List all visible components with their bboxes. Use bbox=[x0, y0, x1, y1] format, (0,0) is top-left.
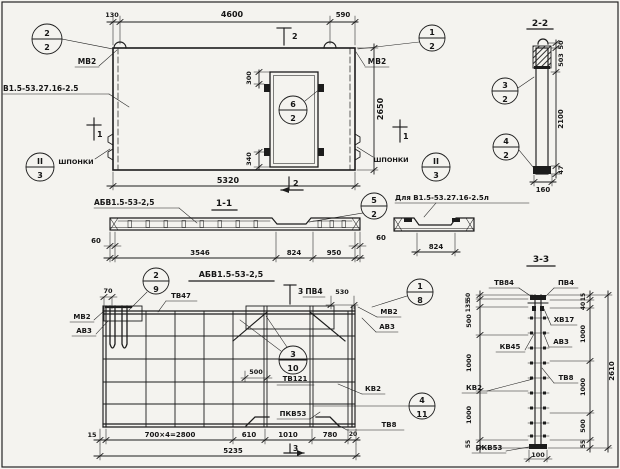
label-kv45: КВ45 bbox=[496, 334, 534, 352]
dim-1010: 1010 bbox=[278, 431, 298, 439]
label-av3-section: АВ3 bbox=[543, 332, 572, 347]
section-2-2-title: 2-2 bbox=[532, 19, 548, 29]
label-pkv53: ПКВ53 bbox=[277, 410, 320, 419]
svg-text:2: 2 bbox=[153, 271, 159, 280]
loop-top bbox=[538, 39, 548, 44]
detail-left-version: Для В1.5-53.27.16-2.5л 824 bbox=[394, 194, 529, 256]
stirrup-zone-mid bbox=[246, 306, 334, 329]
svg-text:2: 2 bbox=[429, 42, 435, 51]
label-tv8: ТВ8 bbox=[336, 421, 404, 430]
embed-plate bbox=[264, 84, 270, 92]
dim-824-detail: 824 bbox=[429, 243, 444, 251]
callout-4-2: 4 2 bbox=[493, 134, 533, 167]
section-3-3: 3-3 ТВ84 ПВ4 bbox=[462, 255, 616, 462]
svg-text:ПКВ53: ПКВ53 bbox=[476, 444, 503, 452]
svg-text:2: 2 bbox=[44, 29, 50, 38]
dim-5320: 5320 bbox=[217, 176, 240, 185]
dim-60-right: 60 bbox=[376, 234, 386, 242]
dim-340: 340 bbox=[245, 152, 253, 166]
label-mv2-right: МВ2 bbox=[358, 307, 401, 317]
svg-text:1: 1 bbox=[403, 132, 409, 141]
reinforcement-plan: АБВ1.5-53-2,5 bbox=[70, 268, 435, 460]
svg-text:КВ2: КВ2 bbox=[466, 384, 482, 392]
dim-4600: 4600 bbox=[221, 10, 244, 19]
label-av3-right: АВ3 bbox=[362, 318, 398, 332]
edge-rebar-elevation bbox=[528, 295, 549, 449]
u-bar bbox=[110, 306, 115, 348]
dim-300: 300 bbox=[245, 71, 253, 85]
svg-text:3: 3 bbox=[290, 350, 296, 359]
bent-bar bbox=[310, 312, 345, 341]
dim-100: 100 bbox=[531, 451, 545, 459]
svg-text:ТВ47: ТВ47 bbox=[171, 292, 191, 300]
detail-label: Для В1.5-53.27.16-2.5л bbox=[395, 194, 489, 202]
dim-2610: 2610 bbox=[608, 361, 616, 381]
svg-text:3: 3 bbox=[293, 444, 298, 453]
svg-text:КВ45: КВ45 bbox=[500, 343, 521, 351]
svg-text:3: 3 bbox=[37, 171, 43, 180]
dim-700x4: 700×4=2800 bbox=[145, 431, 196, 439]
label-mv2-top-right: МВ2 bbox=[356, 52, 389, 67]
section-1-1-title: 1-1 bbox=[216, 199, 232, 209]
svg-text:4: 4 bbox=[503, 137, 509, 146]
dim-780: 780 bbox=[323, 431, 338, 439]
label-keys-right: ШПОНКИ bbox=[357, 147, 409, 164]
callout-2-9: 2 9 bbox=[129, 268, 169, 310]
dim-5235: 5235 bbox=[223, 447, 243, 455]
svg-text:4: 4 bbox=[419, 396, 425, 405]
rebar-bottom-dims: 15 700×4=2800 610 1010 780 20 5235 bbox=[87, 429, 360, 460]
svg-text:5: 5 bbox=[371, 196, 377, 205]
callout-4-11: 4 11 bbox=[313, 393, 435, 419]
plan-bottom-dim: 5320 bbox=[107, 172, 360, 190]
svg-text:ХВ17: ХВ17 bbox=[554, 316, 575, 324]
label-mv2-left: МВ2 bbox=[70, 311, 104, 322]
svg-text:1: 1 bbox=[429, 28, 435, 37]
svg-text:9: 9 bbox=[153, 285, 159, 294]
section-mark-2-top: 2 bbox=[277, 28, 298, 45]
label-tv8-section: ТВ8 bbox=[542, 368, 578, 383]
label-xv17: ХВ17 bbox=[544, 309, 577, 325]
label-panel-series: В1.5-53.27.16-2.5 bbox=[3, 84, 129, 107]
dim-950: 950 bbox=[327, 249, 342, 257]
dim-20: 20 bbox=[349, 431, 357, 438]
label-tv84: ТВ84 bbox=[489, 279, 535, 299]
corner-hook bbox=[316, 417, 339, 426]
callout-II-3-right: II 3 bbox=[422, 153, 450, 181]
callout-3-2: 3 2 bbox=[492, 77, 534, 104]
section-1-1-dims: 60 60 3546 824 950 bbox=[91, 232, 386, 262]
svg-text:ТВ8: ТВ8 bbox=[559, 374, 574, 382]
svg-text:2: 2 bbox=[293, 179, 299, 188]
detail-dim: 824 bbox=[412, 233, 460, 256]
svg-text:8: 8 bbox=[417, 296, 423, 305]
callout-3-10: 3 10 bbox=[240, 316, 307, 374]
svg-text:1: 1 bbox=[417, 282, 423, 291]
svg-text:МВ2: МВ2 bbox=[73, 313, 90, 321]
dim-2650: 2650 bbox=[376, 97, 385, 120]
svg-text:530: 530 bbox=[335, 288, 349, 296]
svg-text:ШПОНКИ: ШПОНКИ bbox=[373, 156, 408, 164]
svg-text:2: 2 bbox=[371, 210, 377, 219]
panel-plan-view: 130 4600 590 2650 5320 300 bbox=[3, 10, 450, 193]
svg-text:2: 2 bbox=[44, 43, 50, 52]
svg-text:6: 6 bbox=[290, 100, 296, 109]
dim-1000a-left: 1000 bbox=[465, 353, 473, 372]
panel-drawing-svg: 130 4600 590 2650 5320 300 bbox=[0, 0, 620, 469]
callout-II-3-left: II 3 bbox=[26, 153, 54, 181]
rebar-cage bbox=[103, 306, 355, 427]
svg-text:1: 1 bbox=[97, 130, 103, 139]
dim-610: 610 bbox=[242, 431, 257, 439]
dim-55-left: 55 bbox=[465, 440, 472, 448]
svg-text:ШПОНКИ: ШПОНКИ bbox=[58, 158, 93, 166]
section-mark-3-top: 3 bbox=[284, 285, 303, 304]
svg-text:МВ2: МВ2 bbox=[380, 308, 397, 316]
section-1-1: 1-1 АБВ1.5-53-2,5 5 2 bbox=[91, 193, 387, 262]
svg-text:ПВ4: ПВ4 bbox=[305, 287, 322, 296]
section-3-3-title: 3-3 bbox=[533, 255, 549, 265]
dim-1000b-left: 1000 bbox=[465, 405, 473, 424]
dim-503: 503 bbox=[557, 53, 565, 67]
embed-plate bbox=[264, 148, 270, 156]
dim-50: 50 bbox=[557, 40, 565, 50]
label-tv121: ТВ121 bbox=[277, 375, 314, 385]
dim-135-left: 135 bbox=[465, 300, 472, 313]
svg-text:АВ3: АВ3 bbox=[379, 323, 395, 331]
svg-text:10: 10 bbox=[287, 364, 299, 373]
dim-500-right: 500 bbox=[579, 419, 587, 433]
svg-text:АВ3: АВ3 bbox=[553, 338, 569, 346]
dim-1000a-right: 1000 bbox=[579, 324, 587, 343]
svg-text:ПКВ53: ПКВ53 bbox=[280, 410, 307, 418]
svg-text:II: II bbox=[37, 157, 43, 166]
embed-plate bbox=[318, 148, 324, 156]
svg-text:3: 3 bbox=[433, 171, 439, 180]
callout-1-2: 1 2 bbox=[358, 25, 445, 51]
svg-text:3: 3 bbox=[298, 287, 303, 296]
label-keys-left: ШПОНКИ bbox=[58, 149, 110, 166]
section-2-2: 2-2 3 2 4 2 50 bbox=[492, 19, 565, 194]
dim-47: 47 bbox=[557, 165, 565, 174]
svg-text:70: 70 bbox=[103, 287, 113, 295]
svg-text:ТВ121: ТВ121 bbox=[283, 375, 308, 383]
svg-text:II: II bbox=[433, 157, 439, 166]
section-mark-2-bottom: 2 bbox=[281, 177, 303, 193]
svg-text:В1.5-53.27.16-2.5: В1.5-53.27.16-2.5 bbox=[3, 84, 79, 93]
svg-text:2: 2 bbox=[290, 114, 296, 123]
callout-1-8: 1 8 bbox=[372, 279, 433, 307]
cross-bars bbox=[528, 317, 549, 438]
svg-text:АБВ1.5-53-2,5: АБВ1.5-53-2,5 bbox=[94, 198, 154, 207]
svg-text:АВ3: АВ3 bbox=[76, 327, 92, 335]
label-tv47: ТВ47 bbox=[158, 292, 197, 312]
corner-hook bbox=[246, 417, 269, 426]
section-mark-1-right: 1 bbox=[393, 120, 409, 142]
dim-130: 130 bbox=[105, 11, 119, 19]
dim-60-left: 60 bbox=[91, 237, 101, 245]
dim-15-right: 15 bbox=[580, 293, 587, 301]
svg-text:2: 2 bbox=[292, 32, 298, 41]
section-mark-1-left: 1 bbox=[87, 118, 103, 140]
section-mark-3-bottom: 3 bbox=[284, 444, 304, 456]
plan-top-dims: 130 4600 590 bbox=[105, 10, 358, 45]
dim-500-left: 500 bbox=[465, 314, 473, 328]
shear-keys bbox=[108, 134, 360, 160]
svg-text:500: 500 bbox=[249, 368, 263, 376]
svg-text:МВ2: МВ2 bbox=[78, 57, 96, 66]
dim-530: 530 bbox=[326, 288, 358, 309]
dim-55-right: 55 bbox=[580, 440, 587, 448]
svg-text:ТВ84: ТВ84 bbox=[494, 279, 514, 287]
dim-100-bottom: 100 bbox=[524, 450, 552, 462]
dim-15: 15 bbox=[87, 431, 97, 439]
u-bar bbox=[122, 306, 127, 348]
rebar-plan-title: АБВ1.5-53-2,5 bbox=[199, 270, 264, 279]
label-pv4-section: ПВ4 bbox=[543, 279, 578, 299]
base-plate bbox=[529, 444, 547, 449]
section-3-3-left-dims: 50 135 500 1000 1000 55 bbox=[465, 291, 533, 452]
label-pkv53-section: ПКВ53 bbox=[472, 444, 529, 453]
dim-1000b-right: 1000 bbox=[579, 377, 587, 396]
svg-text:КВ2: КВ2 bbox=[365, 385, 381, 393]
label-pv4: ПВ4 bbox=[303, 287, 325, 297]
bottom-embed bbox=[533, 166, 551, 174]
dim-40-right: 40 bbox=[580, 302, 587, 310]
callout-2-2: 2 2 bbox=[32, 24, 113, 54]
label-mv2-top-left: МВ2 bbox=[75, 50, 117, 67]
blueprint-sheet: 130 4600 590 2650 5320 300 bbox=[0, 0, 620, 469]
label-kv2: КВ2 bbox=[338, 384, 385, 394]
svg-text:МВ2: МВ2 bbox=[368, 57, 386, 66]
svg-text:2: 2 bbox=[502, 95, 508, 104]
svg-text:ТВ8: ТВ8 bbox=[382, 421, 397, 429]
dim-160: 160 bbox=[536, 186, 551, 194]
dim-590: 590 bbox=[336, 11, 351, 19]
dim-2100: 2100 bbox=[557, 109, 565, 129]
svg-text:11: 11 bbox=[416, 410, 428, 419]
svg-text:ПВ4: ПВ4 bbox=[558, 279, 574, 287]
dim-3546: 3546 bbox=[190, 249, 210, 257]
top-anchor-embed bbox=[533, 46, 551, 68]
svg-text:3: 3 bbox=[502, 81, 508, 90]
dim-824: 824 bbox=[287, 249, 302, 257]
svg-text:2: 2 bbox=[503, 151, 509, 160]
